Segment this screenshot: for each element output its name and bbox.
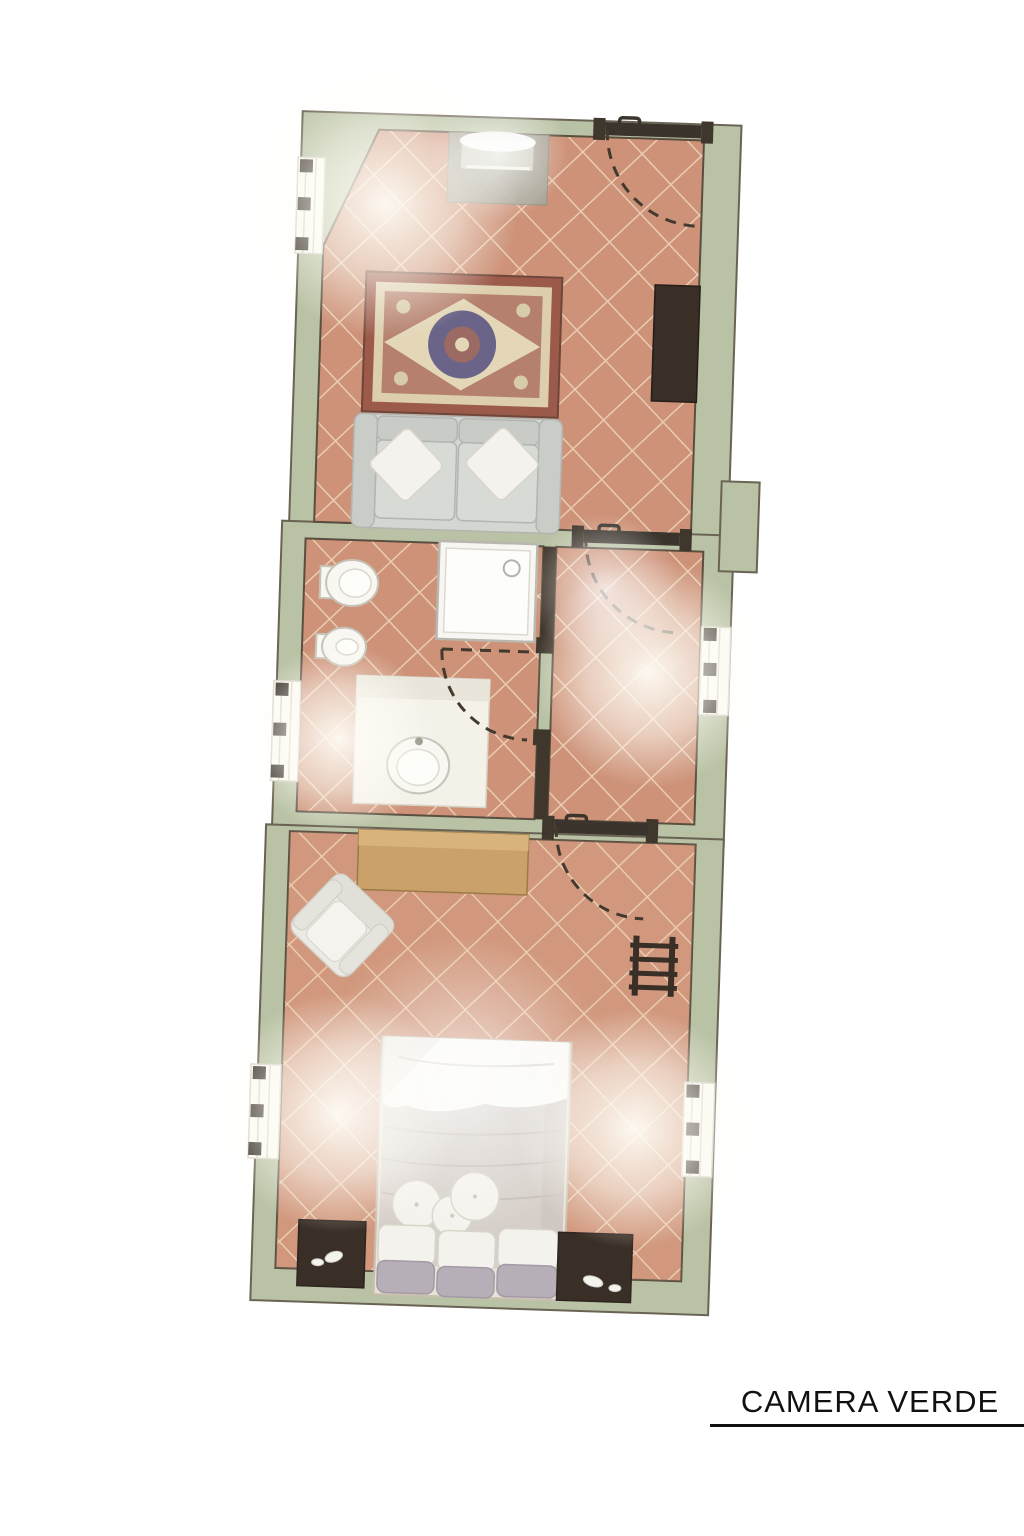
dresser-desk (357, 829, 529, 895)
plan-title: CAMERA VERDE (710, 1384, 1024, 1427)
sofa-arm-right (536, 419, 563, 534)
shower-tray (436, 541, 537, 642)
wall-bump-right (719, 481, 760, 572)
floor-plan-drawing (0, 0, 1024, 1536)
bath-door-jamb-bottom (533, 729, 551, 746)
hall-door-jamb-right (679, 529, 692, 551)
floor-plan-page: CAMERA VERDE (0, 0, 1024, 1536)
plan-group (212, 64, 789, 1316)
slippers-right (609, 1284, 621, 1291)
bed-pillow-gray (377, 1260, 435, 1294)
living-door-jamb-left (593, 118, 606, 140)
slippers-left (311, 1259, 323, 1266)
bed-pillow-gray (437, 1266, 495, 1298)
sofa (351, 413, 563, 534)
sideboard-cabinet (651, 285, 700, 402)
bed-pillow-gray (497, 1264, 558, 1298)
living-door-jamb-right (701, 121, 714, 143)
bedroom-door-jamb-left (542, 815, 555, 839)
